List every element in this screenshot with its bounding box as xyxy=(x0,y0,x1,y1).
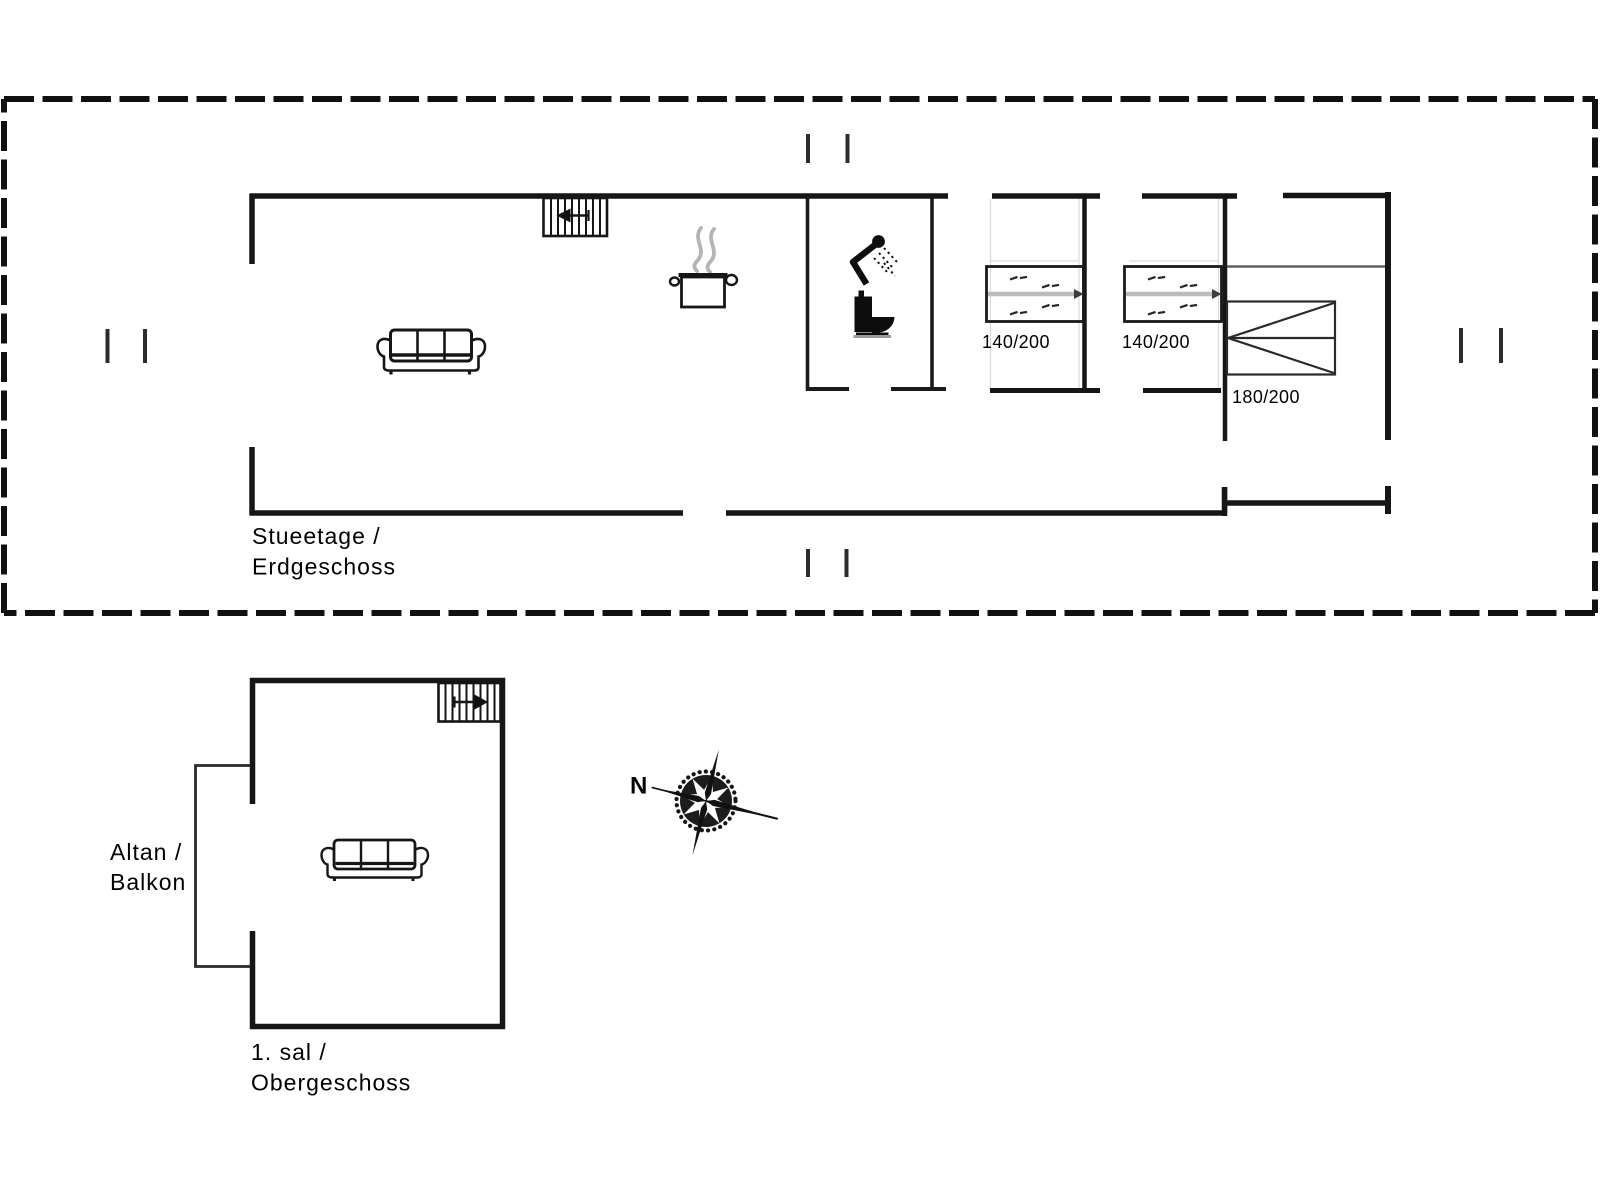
svg-text:Balkon: Balkon xyxy=(110,869,186,895)
svg-text:Stueetage /: Stueetage / xyxy=(252,523,381,549)
svg-text:1. sal /: 1. sal / xyxy=(251,1039,327,1065)
svg-text:140/200: 140/200 xyxy=(1122,332,1190,352)
svg-text:Erdgeschoss: Erdgeschoss xyxy=(252,554,396,580)
svg-text:Obergeschoss: Obergeschoss xyxy=(251,1070,411,1096)
svg-text:140/200: 140/200 xyxy=(982,332,1050,352)
svg-text:Altan /: Altan / xyxy=(110,839,182,865)
svg-text:180/200: 180/200 xyxy=(1232,387,1300,407)
svg-text:N: N xyxy=(630,773,647,800)
